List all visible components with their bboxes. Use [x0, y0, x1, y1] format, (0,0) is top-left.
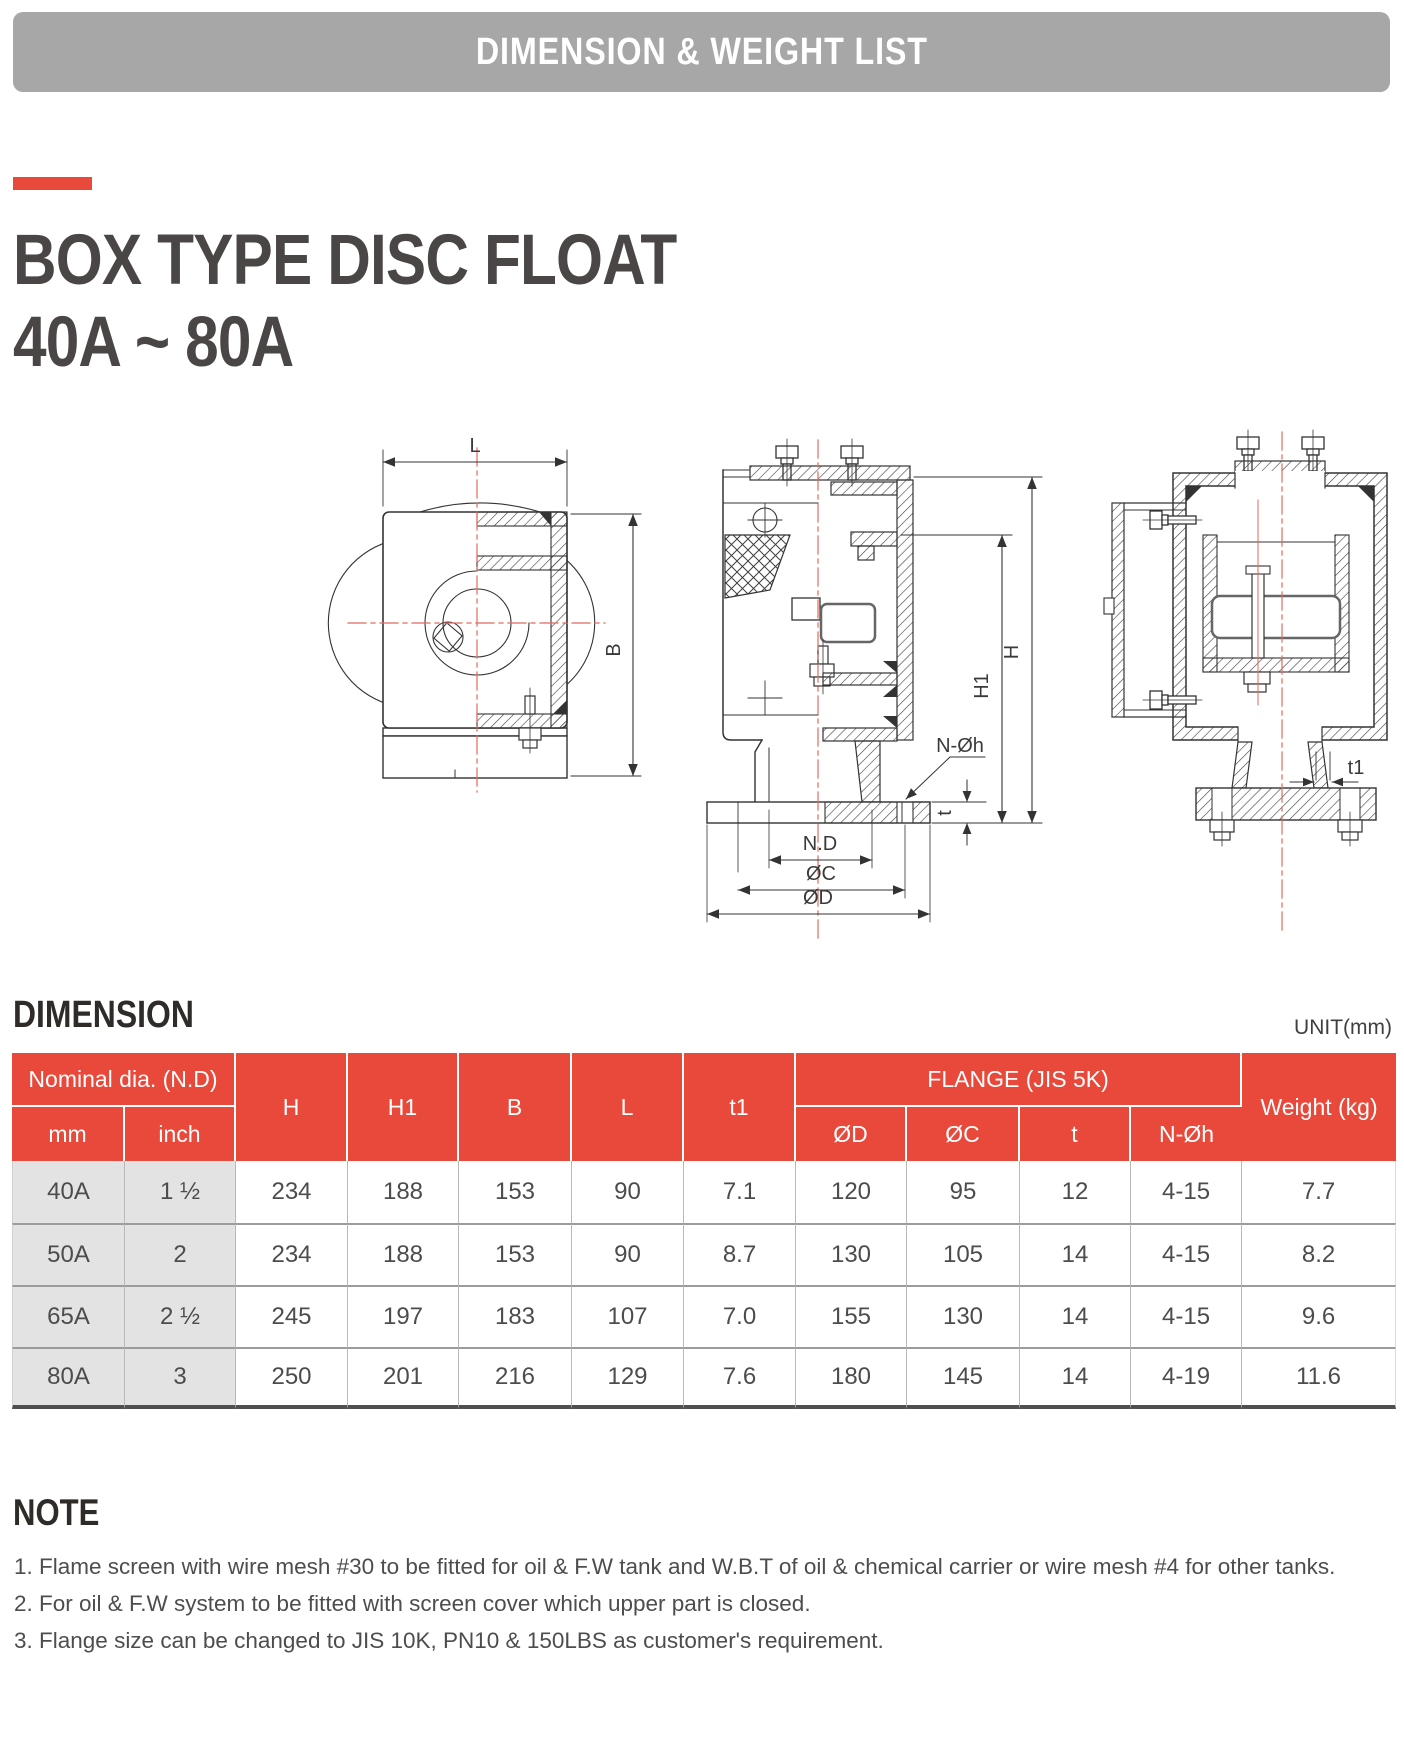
table-cell-mm: 65A: [12, 1285, 125, 1347]
table-cell-oc: 145: [907, 1347, 1020, 1409]
table-cell-l: 90: [572, 1223, 684, 1285]
header-weight: Weight (kg): [1242, 1053, 1396, 1161]
table-cell-h: 245: [236, 1285, 348, 1347]
unit-label: UNIT(mm): [1294, 1016, 1392, 1040]
table-row: 50A2234188153908.7130105144-158.2: [12, 1223, 1396, 1285]
header-inch: inch: [125, 1107, 236, 1161]
header-flange: FLANGE (JIS 5K): [796, 1053, 1242, 1107]
table-cell-h: 234: [236, 1223, 348, 1285]
table-cell-weight: 9.6: [1242, 1285, 1396, 1347]
note-heading: NOTE: [13, 1492, 99, 1534]
table-cell-b: 153: [459, 1161, 572, 1223]
note-item: 1. Flame screen with wire mesh #30 to be…: [14, 1548, 1350, 1585]
dim-label-h1: H1: [971, 673, 993, 699]
header-b: B: [459, 1053, 572, 1161]
table-cell-l: 90: [572, 1161, 684, 1223]
header-t: t: [1020, 1107, 1131, 1161]
table-cell-t1: 7.6: [684, 1347, 796, 1409]
header-mm: mm: [12, 1107, 125, 1161]
table-cell-weight: 7.7: [1242, 1161, 1396, 1223]
table-cell-t1: 7.1: [684, 1161, 796, 1223]
dim-label-od: ØD: [803, 887, 833, 909]
header-n-oh: N-Øh: [1131, 1107, 1242, 1161]
dim-label-t: t: [934, 810, 956, 816]
note-item: 2. For oil & F.W system to be fitted wit…: [14, 1585, 1350, 1622]
table-cell-t1: 7.0: [684, 1285, 796, 1347]
dim-label-b: B: [603, 643, 625, 656]
table-row: 80A32502012161297.6180145144-1911.6: [12, 1347, 1396, 1409]
table-cell-t: 14: [1020, 1285, 1131, 1347]
table-cell-mm: 50A: [12, 1223, 125, 1285]
table-row: 40A1 ½234188153907.112095124-157.7: [12, 1161, 1396, 1223]
technical-drawings: L B: [0, 0, 1404, 960]
table-cell-n_oh: 4-15: [1131, 1223, 1242, 1285]
table-cell-h1: 188: [348, 1161, 459, 1223]
header-t1: t1: [684, 1053, 796, 1161]
note-list: 1. Flame screen with wire mesh #30 to be…: [14, 1548, 1350, 1659]
table-cell-inch: 1 ½: [125, 1161, 236, 1223]
dim-label-noh: N-Øh: [936, 735, 984, 757]
table-cell-t: 12: [1020, 1161, 1131, 1223]
dim-label-l: L: [469, 435, 480, 457]
table-cell-n_oh: 4-15: [1131, 1285, 1242, 1347]
dimension-table: Nominal dia. (N.D) H H1 B L t1 FLANGE (J…: [12, 1053, 1396, 1409]
table-header: Nominal dia. (N.D) H H1 B L t1 FLANGE (J…: [12, 1053, 1396, 1161]
table-cell-b: 153: [459, 1223, 572, 1285]
header-od: ØD: [796, 1107, 907, 1161]
table-cell-t: 14: [1020, 1223, 1131, 1285]
table-cell-oc: 105: [907, 1223, 1020, 1285]
table-cell-h1: 201: [348, 1347, 459, 1409]
table-cell-oc: 130: [907, 1285, 1020, 1347]
table-cell-od: 130: [796, 1223, 907, 1285]
table-cell-weight: 11.6: [1242, 1347, 1396, 1409]
table-cell-weight: 8.2: [1242, 1223, 1396, 1285]
dimension-heading: DIMENSION: [13, 994, 194, 1037]
header-h: H: [236, 1053, 348, 1161]
table-cell-mm: 80A: [12, 1347, 125, 1409]
table-cell-t: 14: [1020, 1347, 1131, 1409]
page: DIMENSION & WEIGHT LIST BOX TYPE DISC FL…: [0, 0, 1404, 1740]
table-cell-b: 216: [459, 1347, 572, 1409]
header-l: L: [572, 1053, 684, 1161]
table-cell-b: 183: [459, 1285, 572, 1347]
table-cell-od: 180: [796, 1347, 907, 1409]
table-cell-h: 250: [236, 1347, 348, 1409]
table-row: 65A2 ½2451971831077.0155130144-159.6: [12, 1285, 1396, 1347]
dimension-table-body: 40A1 ½234188153907.112095124-157.750A223…: [12, 1161, 1396, 1409]
table-cell-l: 107: [572, 1285, 684, 1347]
table-cell-inch: 2 ½: [125, 1285, 236, 1347]
drawing-side-view: L B: [328, 435, 641, 792]
table-cell-od: 120: [796, 1161, 907, 1223]
note-item: 3. Flange size can be changed to JIS 10K…: [14, 1622, 1350, 1659]
table-cell-t1: 8.7: [684, 1223, 796, 1285]
table-cell-h: 234: [236, 1161, 348, 1223]
table-cell-n_oh: 4-15: [1131, 1161, 1242, 1223]
dim-label-nd: N.D: [803, 833, 837, 855]
table-cell-h1: 197: [348, 1285, 459, 1347]
table-cell-oc: 95: [907, 1161, 1020, 1223]
table-cell-inch: 2: [125, 1223, 236, 1285]
dim-label-h: H: [1001, 645, 1023, 659]
drawing-rear-section-view: t1: [1104, 430, 1387, 930]
table-cell-mm: 40A: [12, 1161, 125, 1223]
header-oc: ØC: [907, 1107, 1020, 1161]
dim-label-t1: t1: [1348, 757, 1365, 779]
dim-label-oc: ØC: [806, 863, 836, 885]
table-cell-l: 129: [572, 1347, 684, 1409]
drawing-section-view: H1 H N-Øh t N.D ØC ØD: [707, 439, 1042, 938]
table-cell-h1: 188: [348, 1223, 459, 1285]
table-cell-od: 155: [796, 1285, 907, 1347]
header-h1: H1: [348, 1053, 459, 1161]
table-cell-n_oh: 4-19: [1131, 1347, 1242, 1409]
header-nominal-dia: Nominal dia. (N.D): [12, 1053, 236, 1107]
table-cell-inch: 3: [125, 1347, 236, 1409]
